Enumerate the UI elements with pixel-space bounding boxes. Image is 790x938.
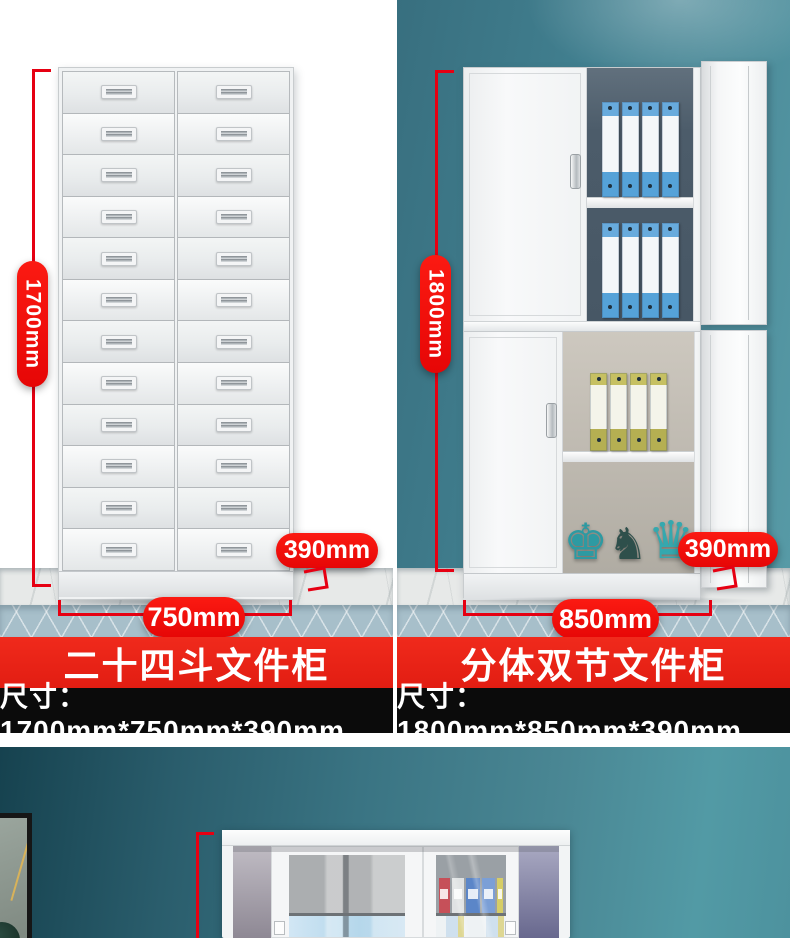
cabinet-side-frame (693, 68, 700, 321)
drawer-handle-icon (101, 210, 137, 224)
glass-pane (436, 855, 506, 937)
depth-bracket-icon (711, 564, 741, 592)
drawer-handle-icon (101, 459, 137, 473)
glass-lower-reflection (289, 916, 405, 937)
drawer (178, 529, 289, 570)
right-sliding-glass-door (423, 846, 519, 938)
width-dimension-badge: 750mm (143, 597, 245, 637)
height-dimension-badge: 1700mm (17, 261, 48, 387)
drawer (63, 155, 174, 197)
drawer-handle-icon (101, 293, 137, 307)
olive-binder (610, 373, 627, 451)
drawer-cabinet-image (58, 67, 294, 600)
height-label: 1700mm (21, 279, 45, 369)
interior-shelf-line (289, 913, 405, 916)
product-comparison-section: 1700mm 750mm 390mm 二十四斗文件柜 尺寸：1700mm*750… (0, 0, 790, 733)
page: 1700mm 750mm 390mm 二十四斗文件柜 尺寸：1700mm*750… (0, 0, 790, 938)
interior-shelf-line (436, 913, 506, 916)
drawer (178, 280, 289, 322)
drawer-handle-icon (216, 418, 252, 432)
chess-king-decor: ♚ (563, 517, 608, 567)
drawer (178, 363, 289, 405)
product-size-banner: 尺寸：1700mm*750mm*390mm (0, 688, 393, 733)
drawer (63, 197, 174, 239)
lower-cabinet-unit: ♚♞♛ (464, 332, 700, 573)
drawer-handle-icon (216, 501, 252, 515)
picture-circle-art (0, 922, 20, 938)
olive-binder (650, 373, 667, 451)
drawer (63, 529, 174, 570)
door-handle-icon (505, 921, 516, 935)
shelf-divider (563, 451, 694, 462)
picture-gold-line (10, 833, 31, 901)
drawer (63, 405, 174, 447)
drawer (178, 114, 289, 156)
blue-binder (602, 102, 619, 197)
width-label: 850mm (559, 604, 652, 635)
unit-seam (464, 321, 700, 332)
drawer (63, 321, 174, 363)
olive-binder (590, 373, 607, 451)
drawer-handle-icon (216, 127, 252, 141)
drawer (63, 72, 174, 114)
split-cabinet-image: ♚♞♛ (463, 67, 701, 598)
blue-binder (602, 223, 619, 318)
product-size-banner: 尺寸：1800mm*850mm*390mm (397, 688, 790, 733)
drawer-handle-icon (216, 543, 252, 557)
drawer-column-left (62, 71, 175, 571)
blue-binder (466, 878, 480, 916)
drawer-handle-icon (101, 252, 137, 266)
lower-left-door (464, 332, 563, 573)
product-size-text: 尺寸：1700mm*750mm*390mm (0, 675, 393, 734)
olive-binder (630, 373, 647, 451)
height-dimension-line (196, 832, 199, 938)
depth-dimension-badge: 390mm (276, 533, 378, 568)
drawer-handle-icon (101, 85, 137, 99)
red-binder (439, 878, 450, 916)
drawer (178, 197, 289, 239)
depth-label: 390mm (685, 535, 771, 564)
door-handle-icon (274, 921, 285, 935)
drawer (63, 238, 174, 280)
drawer-handle-icon (216, 168, 252, 182)
drawer-handle-icon (216, 459, 252, 473)
yellow-binder (497, 878, 504, 916)
next-product-preview-section (0, 747, 790, 938)
drawer (63, 114, 174, 156)
product-size-text: 尺寸：1800mm*850mm*390mm (397, 675, 790, 734)
blue-binder (662, 223, 679, 318)
width-label: 750mm (147, 602, 240, 633)
upper-cabinet-unit (464, 68, 700, 321)
door-handle-icon (570, 154, 581, 189)
drawer-handle-icon (101, 543, 137, 557)
depth-label: 390mm (284, 536, 370, 565)
drawer-handle-icon (216, 252, 252, 266)
right-recess-panel (519, 846, 559, 938)
wall-picture-frame (0, 813, 32, 938)
upper-open-door (701, 61, 767, 325)
left-sliding-glass-door (271, 846, 423, 938)
drawer-handle-icon (101, 376, 137, 390)
binders-behind-glass (439, 878, 503, 916)
lower-open-bay: ♚♞♛ (563, 332, 694, 573)
drawer-column-right (177, 71, 290, 571)
cabinet-body (233, 846, 559, 938)
glass-pane (289, 855, 405, 937)
chess-pieces-decor: ♚♞♛ (563, 509, 694, 567)
drawer (178, 446, 289, 488)
depth-bracket-icon (302, 565, 332, 593)
blue-binder (482, 878, 494, 916)
drawer (178, 488, 289, 530)
shelf-divider (587, 197, 693, 208)
depth-dimension-badge: 390mm (678, 532, 778, 567)
blue-binder (642, 223, 659, 318)
binder-shelf-row (587, 223, 693, 318)
glass-lower-shelf-content (436, 916, 506, 937)
drawer-handle-icon (216, 293, 252, 307)
drawer-handle-icon (216, 376, 252, 390)
drawer-handle-icon (216, 335, 252, 349)
binder-shelf-row (587, 102, 693, 197)
product-panel-split-cabinet: ♚♞♛ 1800mm 850mm 390mm (397, 0, 790, 733)
white-binder (452, 878, 464, 916)
height-label: 1800mm (424, 269, 448, 359)
drawer-bank (59, 68, 293, 571)
cabinet-top-frame (222, 830, 570, 846)
drawer (178, 155, 289, 197)
drawer (178, 238, 289, 280)
drawer-handle-icon (216, 210, 252, 224)
drawer (178, 321, 289, 363)
drawer (63, 363, 174, 405)
drawer (63, 280, 174, 322)
width-dimension-badge: 850mm (552, 599, 659, 639)
drawer-handle-icon (101, 418, 137, 432)
blue-binder (662, 102, 679, 197)
blue-binder (622, 102, 639, 197)
binder-shelf-row (563, 373, 694, 451)
drawer (63, 446, 174, 488)
left-recess-panel (233, 846, 271, 938)
upper-open-bay (587, 68, 693, 321)
drawer-handle-icon (101, 501, 137, 515)
cabinet-base (59, 571, 293, 597)
drawer-handle-icon (101, 335, 137, 349)
cabinet-base (464, 573, 700, 600)
drawer-handle-icon (101, 127, 137, 141)
section-divider (0, 733, 790, 747)
drawer (178, 72, 289, 114)
chess-knight-decor: ♞ (608, 523, 647, 567)
drawer-handle-icon (216, 85, 252, 99)
drawer (63, 488, 174, 530)
sliding-door-cabinet-image (222, 830, 570, 938)
drawer (178, 405, 289, 447)
drawer-handle-icon (101, 168, 137, 182)
height-dimension-badge: 1800mm (420, 255, 451, 373)
blue-binder (622, 223, 639, 318)
product-panel-24-drawer: 1700mm 750mm 390mm 二十四斗文件柜 尺寸：1700mm*750… (0, 0, 393, 733)
door-handle-icon (546, 403, 557, 438)
upper-left-door (464, 68, 587, 321)
blue-binder (642, 102, 659, 197)
